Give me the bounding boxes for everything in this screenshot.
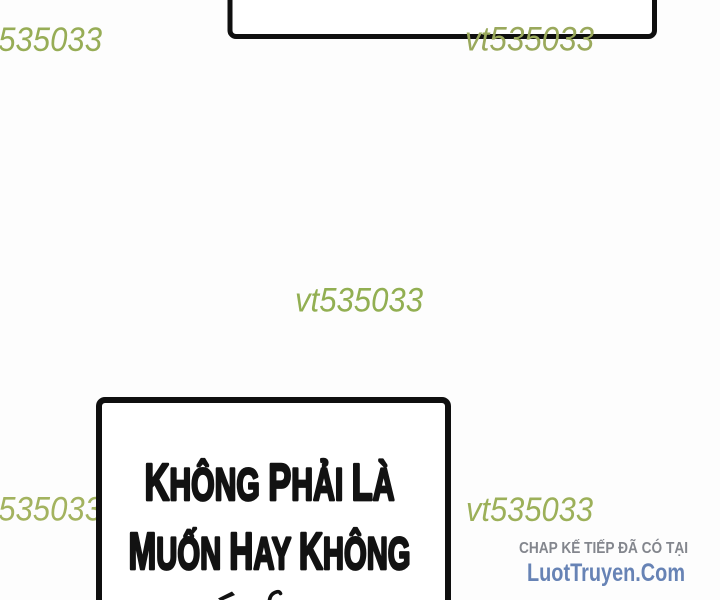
- svg-text:vt535033: vt535033: [466, 491, 593, 529]
- svg-text:vt535033: vt535033: [0, 21, 102, 59]
- svg-text:CHAP KẾ TIẾP ĐÃ CÓ TẠI: CHAP KẾ TIẾP ĐÃ CÓ TẠI: [519, 537, 688, 557]
- svg-text:MUỐN HAY KHÔNG: MUỐN HAY KHÔNG: [129, 523, 411, 581]
- svg-text:vt535033: vt535033: [0, 491, 102, 529]
- svg-text:vt535033: vt535033: [465, 21, 594, 59]
- svg-text:KHÔNG PHẢI LÀ: KHÔNG PHẢI LÀ: [145, 454, 395, 512]
- svg-text:LuotTruyen.Com: LuotTruyen.Com: [527, 559, 685, 587]
- svg-text:vt535033: vt535033: [295, 281, 423, 319]
